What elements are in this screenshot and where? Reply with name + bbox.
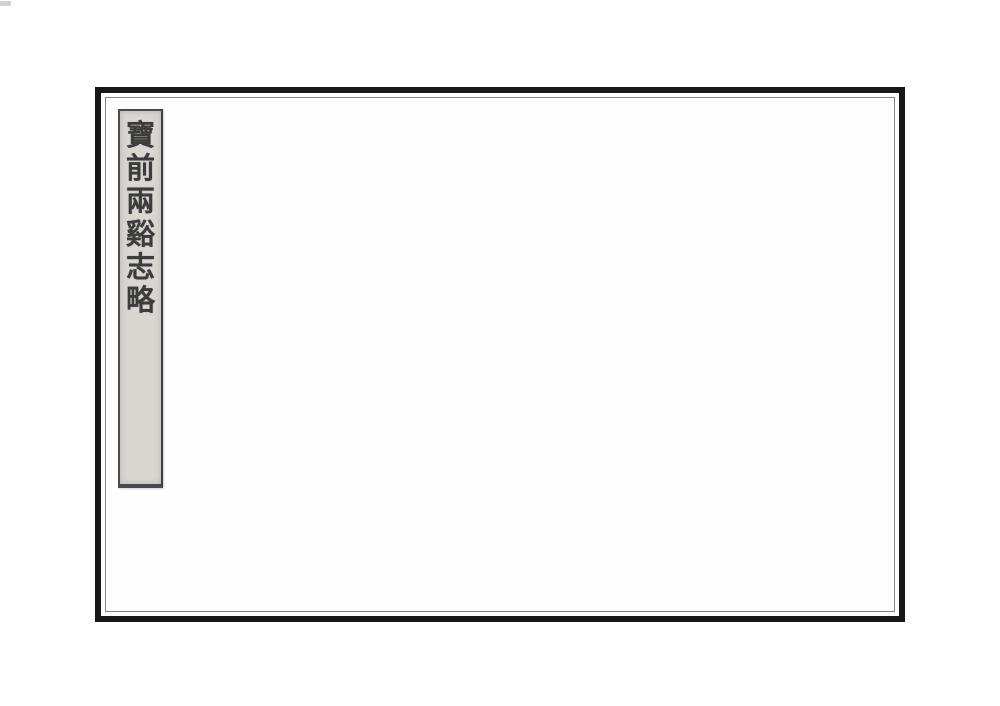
title-character-6: 略 bbox=[120, 284, 161, 317]
title-character-3: 兩 bbox=[120, 185, 161, 218]
title-character-5: 志 bbox=[120, 251, 161, 284]
title-character-1: 寶 bbox=[120, 119, 161, 152]
title-character-2: 前 bbox=[120, 152, 161, 185]
scan-canvas: 寶 前 兩 谿 志 略 bbox=[0, 0, 1000, 706]
scan-artifact-speck bbox=[0, 1, 11, 6]
title-slip: 寶 前 兩 谿 志 略 bbox=[118, 109, 163, 488]
book-cover-page: 寶 前 兩 谿 志 略 bbox=[95, 87, 905, 622]
title-character-4: 谿 bbox=[120, 218, 161, 251]
inner-rule-line bbox=[105, 97, 895, 612]
